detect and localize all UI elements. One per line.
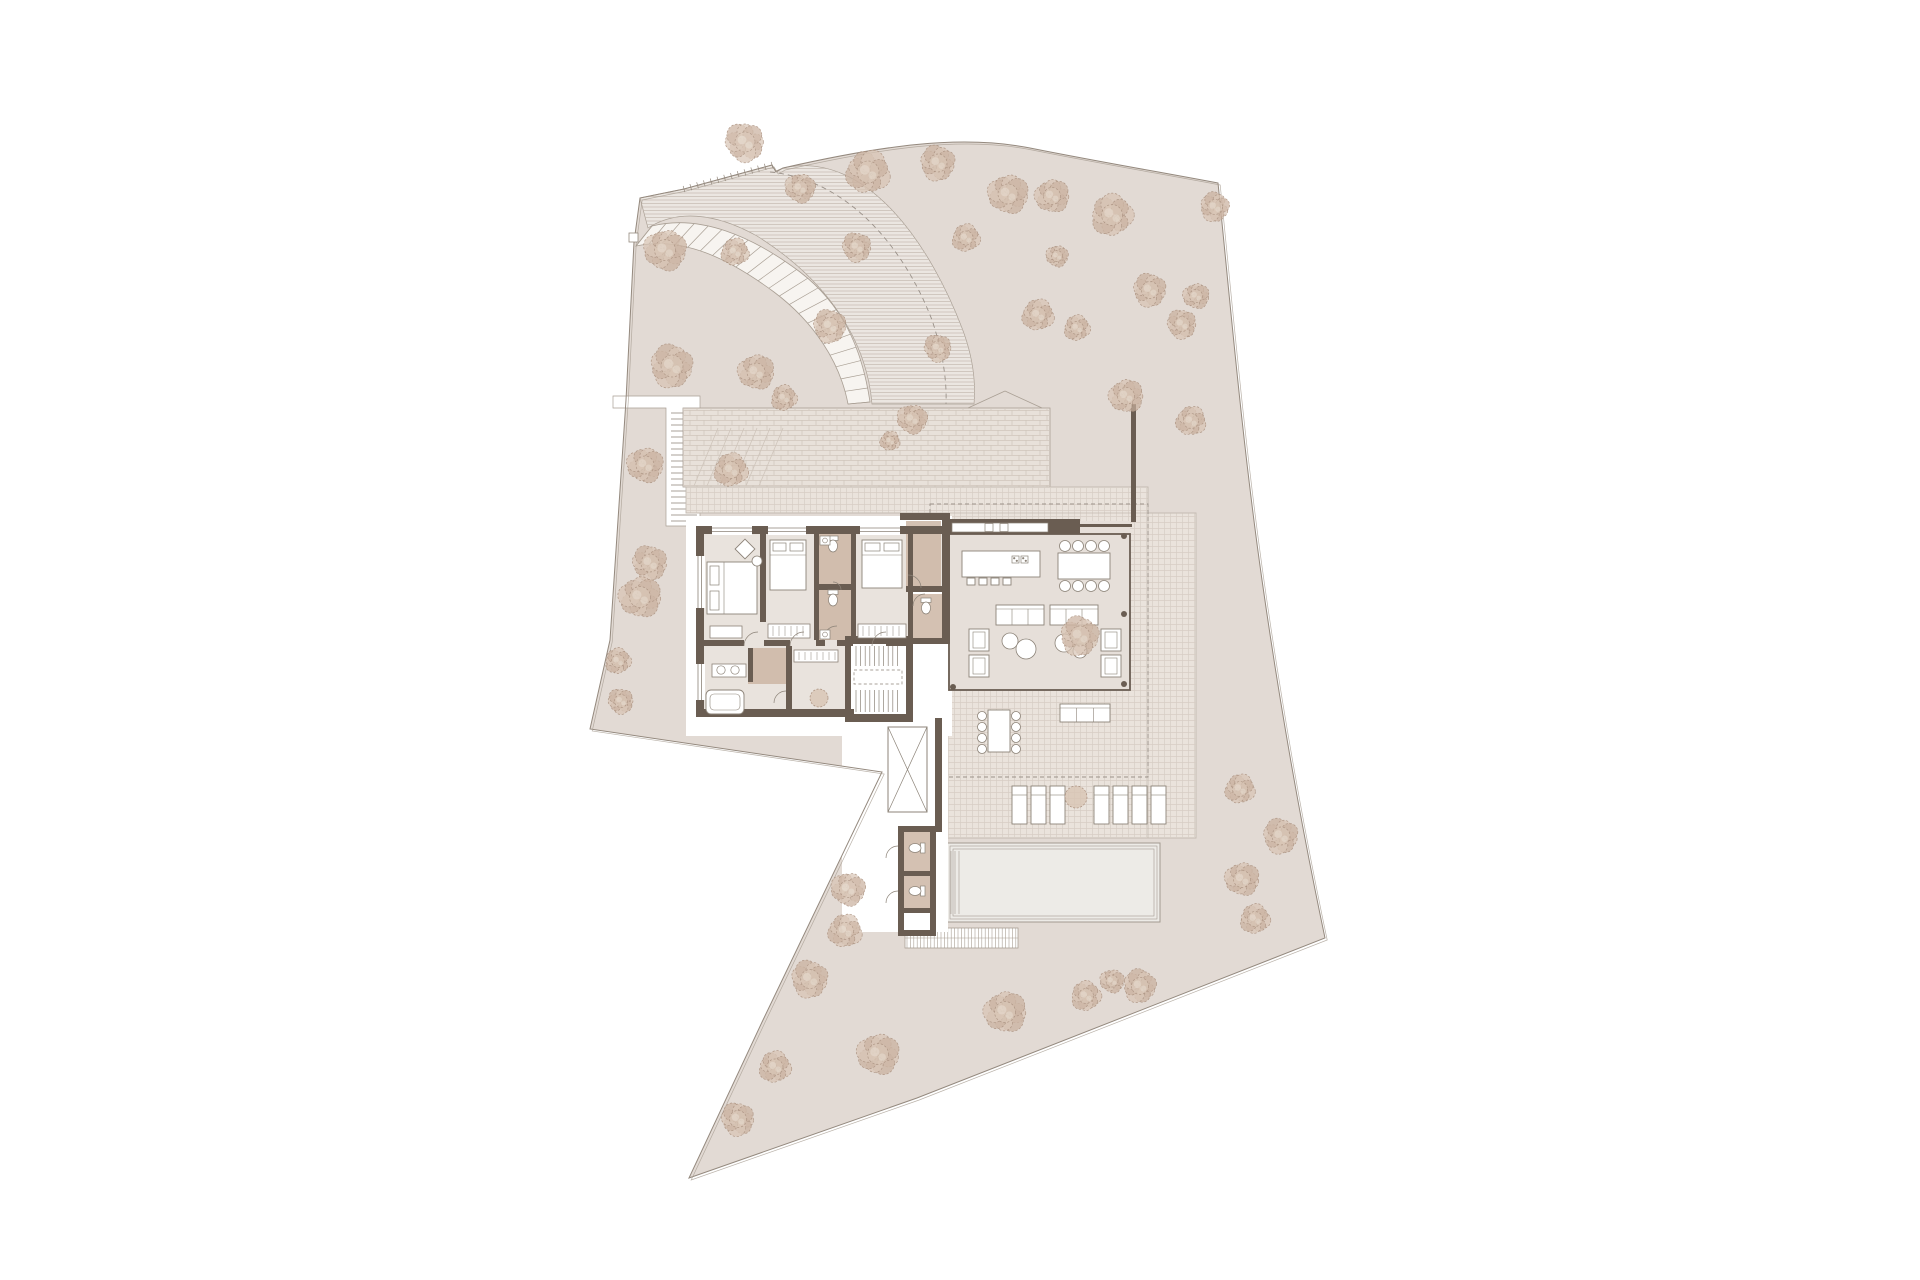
sofa <box>1060 704 1110 722</box>
burner <box>1016 560 1018 562</box>
tree-highlight <box>784 398 789 403</box>
tree-highlight <box>1038 315 1044 321</box>
tree-highlight <box>1053 252 1058 257</box>
toilet <box>828 590 838 606</box>
tree-highlight <box>732 1114 739 1121</box>
tree-highlight <box>1001 188 1010 197</box>
tree-highlight <box>824 321 831 328</box>
tree-highlight <box>1215 207 1220 212</box>
tree-highlight <box>1052 195 1058 201</box>
toilet-bowl <box>909 887 921 896</box>
wall <box>1078 524 1132 527</box>
wall <box>816 640 825 646</box>
wardrobe <box>768 624 810 638</box>
wall <box>845 714 912 722</box>
tree-highlight <box>1086 996 1091 1001</box>
pool-water <box>947 843 1160 922</box>
tree-highlight <box>738 1118 744 1124</box>
site-plan-drawing <box>0 0 1920 1280</box>
tree-highlight <box>1196 296 1201 301</box>
tree-highlight <box>1112 214 1120 222</box>
outdoor-chair <box>978 734 987 743</box>
tree-highlight <box>1281 835 1287 841</box>
tree-highlight <box>938 162 944 168</box>
bathroom-floor <box>748 648 786 684</box>
tree-highlight <box>1072 324 1078 330</box>
tree-highlight <box>1108 977 1113 982</box>
outdoor-chair <box>1012 734 1021 743</box>
wall <box>764 640 790 646</box>
toilet <box>909 886 925 896</box>
dining-chair <box>1099 541 1110 552</box>
tree-highlight <box>1077 328 1082 333</box>
tree-highlight <box>845 930 851 936</box>
desk-chair <box>752 556 762 566</box>
tree-highlight <box>1005 1011 1013 1019</box>
tree-highlight <box>1255 919 1260 924</box>
tree-highlight <box>1104 208 1113 217</box>
tree-highlight <box>1176 319 1183 326</box>
wall <box>851 534 856 640</box>
tree-highlight <box>870 1047 879 1056</box>
appliance <box>1000 524 1008 532</box>
tree <box>1201 192 1229 222</box>
outdoor-chair <box>1012 712 1021 721</box>
wall <box>930 826 936 936</box>
tree-highlight <box>886 438 890 442</box>
burner <box>1022 557 1024 559</box>
tree-highlight <box>857 247 862 252</box>
wall <box>906 586 950 592</box>
tree-highlight <box>1120 391 1127 398</box>
tree-highlight <box>1274 830 1282 838</box>
outdoor-table <box>988 710 1010 752</box>
dining-chair <box>1060 541 1071 552</box>
wall <box>898 826 904 936</box>
tree-highlight <box>632 590 641 599</box>
tree-highlight <box>779 394 785 400</box>
tree-highlight <box>730 248 736 254</box>
kitchen-island <box>962 551 1040 577</box>
wall <box>898 930 936 936</box>
outdoor-chair <box>1012 723 1021 732</box>
window <box>695 556 705 608</box>
tree-highlight <box>1080 635 1087 642</box>
tree-highlight <box>1112 981 1116 985</box>
wall <box>898 871 936 876</box>
dining-chair <box>1086 581 1097 592</box>
tree-highlight <box>1032 310 1039 317</box>
tree-highlight <box>851 242 858 249</box>
outdoor-chair <box>978 723 987 732</box>
tree-highlight <box>1134 981 1141 988</box>
dining-table <box>1058 553 1110 579</box>
wall <box>748 648 753 682</box>
lightwell <box>888 727 927 812</box>
toilet-bowl <box>829 594 838 606</box>
sun-lounger <box>1094 786 1109 824</box>
tree-highlight <box>868 171 876 179</box>
stool <box>967 578 975 585</box>
tree-highlight <box>803 973 811 981</box>
outdoor-chair <box>978 745 987 754</box>
window <box>712 525 752 535</box>
wall <box>814 534 819 640</box>
tree-highlight <box>1191 292 1197 298</box>
wall <box>935 718 942 832</box>
wall <box>898 908 936 913</box>
tree-highlight <box>912 419 917 424</box>
wall <box>906 636 913 722</box>
tree-highlight <box>769 1062 776 1069</box>
wall <box>845 636 851 722</box>
tree-highlight <box>794 183 801 190</box>
wall <box>786 646 792 717</box>
tree-highlight <box>966 238 971 243</box>
column <box>1121 533 1127 539</box>
sideboard <box>710 626 742 638</box>
tree-highlight <box>860 165 870 175</box>
tree-highlight <box>745 141 752 148</box>
wall <box>760 534 766 622</box>
tree-highlight <box>810 978 817 985</box>
sun-lounger <box>1151 786 1166 824</box>
sink <box>820 536 830 545</box>
terrace-plant <box>1065 786 1087 808</box>
tree-highlight <box>638 459 646 467</box>
pillow <box>773 543 786 551</box>
tree-highlight <box>657 243 666 252</box>
sun-lounger <box>1113 786 1128 824</box>
tree-highlight <box>643 557 651 565</box>
tree-highlight <box>749 366 757 374</box>
tree-highlight <box>1191 421 1196 426</box>
boundary-marker <box>629 233 638 242</box>
sofa <box>996 605 1044 625</box>
tree-highlight <box>735 252 740 257</box>
stool <box>979 578 987 585</box>
tree-highlight <box>731 469 737 475</box>
tree-highlight <box>1240 789 1245 794</box>
dining-chair <box>1073 541 1084 552</box>
tree-highlight <box>1046 191 1053 198</box>
indoor-plant <box>810 689 828 707</box>
tree-highlight <box>1057 256 1061 260</box>
toilet-bowl <box>909 844 921 853</box>
coffee-table <box>1016 639 1036 659</box>
pillow <box>884 543 899 551</box>
wall <box>819 584 851 590</box>
tree-highlight <box>878 1053 886 1061</box>
column <box>950 684 956 690</box>
tree-highlight <box>1234 784 1241 791</box>
tree-highlight <box>1140 985 1146 991</box>
tree-highlight <box>725 465 732 472</box>
tree-highlight <box>665 249 673 257</box>
tree-highlight <box>621 701 626 706</box>
tree-highlight <box>839 926 846 933</box>
dining-chair <box>1086 541 1097 552</box>
tree-highlight <box>1080 991 1087 998</box>
tree-highlight <box>830 325 836 331</box>
tree-highlight <box>640 596 648 604</box>
tree-highlight <box>890 441 894 445</box>
column <box>1121 611 1127 617</box>
pool <box>947 843 1160 922</box>
outdoor-chair <box>1012 745 1021 754</box>
tree-highlight <box>961 234 967 240</box>
dining-chair <box>1099 581 1110 592</box>
tree-highlight <box>848 888 854 894</box>
tree-highlight <box>1008 193 1015 200</box>
tree-highlight <box>938 348 943 353</box>
dining-chair <box>1060 581 1071 592</box>
tree-highlight <box>1126 395 1132 401</box>
tree-highlight <box>800 188 805 193</box>
window <box>768 525 806 535</box>
tree <box>725 124 763 163</box>
wall <box>898 826 936 832</box>
tree-highlight <box>756 371 762 377</box>
sun-lounger <box>1132 786 1147 824</box>
tree-highlight <box>1182 324 1187 329</box>
tree-highlight <box>775 1067 781 1073</box>
tree-highlight <box>933 344 939 350</box>
burner <box>1013 557 1015 559</box>
toilet <box>921 598 931 614</box>
bathtub <box>706 690 744 714</box>
tree-highlight <box>842 884 849 891</box>
tree-highlight <box>645 464 651 470</box>
pillow <box>865 543 880 551</box>
tree-highlight <box>618 661 623 666</box>
stool <box>991 578 999 585</box>
tree-highlight <box>1073 630 1082 639</box>
window <box>860 525 900 535</box>
sun-lounger <box>1050 786 1065 824</box>
tree-highlight <box>664 359 674 369</box>
burner <box>1025 560 1027 562</box>
dining-chair <box>1073 581 1084 592</box>
tree-highlight <box>613 657 619 663</box>
outdoor-chair <box>978 712 987 721</box>
tree-highlight <box>1242 878 1248 884</box>
wall <box>704 640 744 646</box>
tree-highlight <box>906 414 913 421</box>
column <box>1121 681 1127 687</box>
pillow <box>790 543 803 551</box>
tree-highlight <box>1249 914 1256 921</box>
window <box>695 664 705 700</box>
tree-highlight <box>1150 289 1156 295</box>
toilet-bowl <box>922 602 931 614</box>
site-plan-page <box>0 0 1920 1280</box>
pillow <box>710 591 719 610</box>
tree-highlight <box>931 157 939 165</box>
tree-highlight <box>997 1005 1006 1014</box>
coffee-table <box>1002 633 1018 649</box>
sink <box>820 630 830 639</box>
tree-highlight <box>1236 874 1243 881</box>
toilet <box>909 843 925 853</box>
wall <box>1131 404 1136 522</box>
tree-highlight <box>1144 285 1151 292</box>
sun-lounger <box>1031 786 1046 824</box>
tree-highlight <box>738 136 747 145</box>
tree-highlight <box>616 697 622 703</box>
pillow <box>710 566 719 585</box>
tree-highlight <box>1185 416 1192 423</box>
appliance <box>985 524 993 532</box>
tree-highlight <box>1209 202 1216 209</box>
stool <box>1003 578 1011 585</box>
tree-highlight <box>650 562 656 568</box>
wardrobe <box>794 650 838 662</box>
sun-lounger <box>1012 786 1027 824</box>
tree-highlight <box>672 365 680 373</box>
